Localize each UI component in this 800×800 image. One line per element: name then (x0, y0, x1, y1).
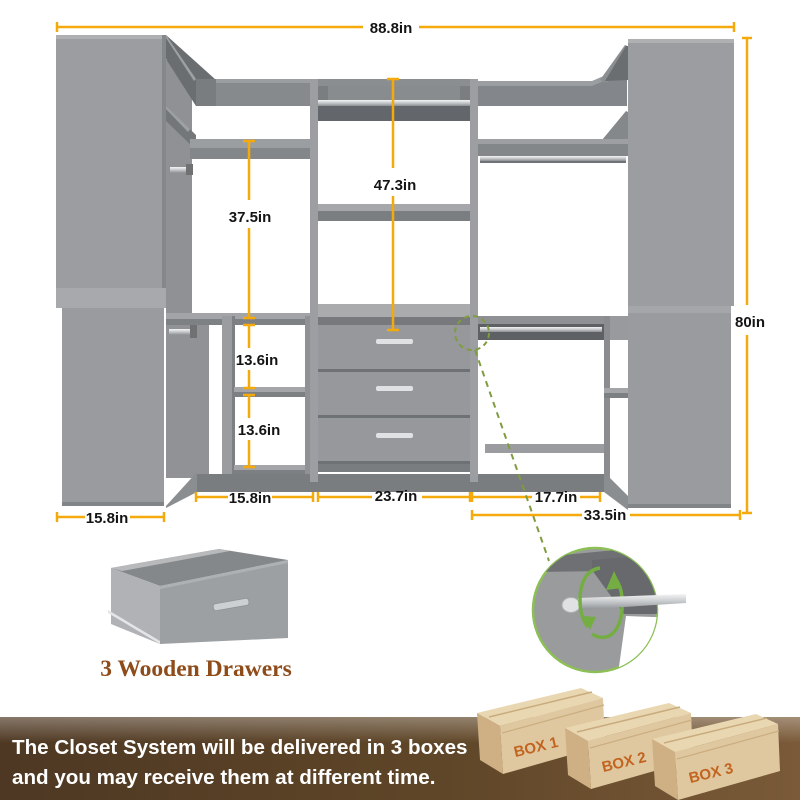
svg-text:47.3in: 47.3in (374, 177, 417, 194)
svg-text:and you may receive them at di: and you may receive them at different ti… (12, 766, 435, 789)
svg-text:15.8in: 15.8in (86, 510, 129, 527)
svg-text:33.5in: 33.5in (584, 507, 627, 524)
svg-text:15.8in: 15.8in (229, 490, 272, 507)
svg-text:37.5in: 37.5in (229, 209, 272, 226)
svg-text:13.6in: 13.6in (236, 352, 279, 369)
svg-text:The Closet System will be deli: The Closet System will be delivered in 3… (12, 736, 468, 759)
svg-text:13.6in: 13.6in (238, 422, 281, 439)
svg-text:3 Wooden Drawers: 3 Wooden Drawers (100, 656, 291, 682)
svg-text:80in: 80in (735, 314, 765, 331)
svg-text:88.8in: 88.8in (370, 20, 413, 37)
svg-text:23.7in: 23.7in (375, 488, 418, 505)
svg-text:17.7in: 17.7in (535, 489, 578, 506)
